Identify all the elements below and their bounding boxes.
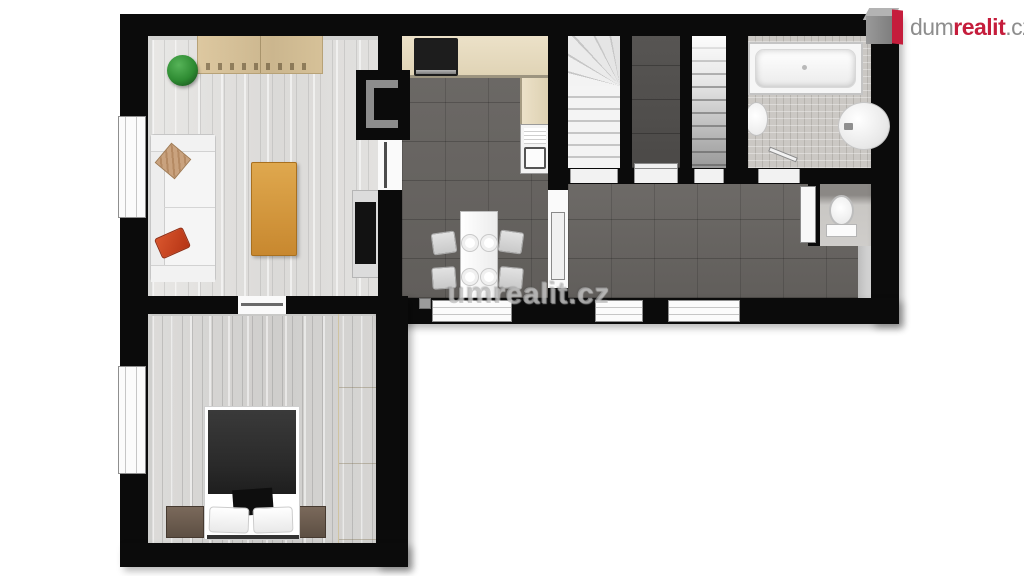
staircase-up-winders — [568, 36, 620, 86]
bathtub-drain — [802, 65, 807, 70]
dining-hall-door-leaf — [551, 212, 565, 280]
bedroom-right-wall — [376, 296, 408, 567]
logo-icon-red-slab — [892, 9, 903, 44]
plate — [480, 234, 498, 252]
bedroom-window — [118, 366, 146, 474]
watermark-text: umrealit.cz — [447, 277, 609, 311]
sideboard-vents — [206, 63, 314, 70]
tv — [355, 202, 376, 264]
bed-headboard — [207, 535, 299, 539]
water-heater — [838, 102, 890, 150]
wc-door-leaf — [800, 186, 816, 243]
sink-drainer — [524, 128, 546, 144]
pantry-doorway — [634, 169, 678, 183]
toilet — [829, 195, 854, 226]
logo-text-accent: realit — [953, 14, 1005, 40]
stairs-pantry-wall — [620, 36, 632, 182]
washbasin — [745, 102, 768, 136]
living-kitchen-door-leaf — [384, 142, 387, 188]
dumrealit-logo: dumrealit.cz — [862, 4, 1020, 48]
dining-window-crank — [419, 298, 431, 309]
floor-plan-canvas: umrealit.cz dumrealit.cz — [0, 0, 1024, 576]
living-kitchen-doorway — [378, 140, 402, 190]
logo-house-3d-icon — [862, 4, 908, 48]
pantry-floor — [632, 36, 680, 168]
coffee-table — [251, 162, 297, 256]
nightstand-left — [166, 506, 204, 538]
bed-pillow-right — [253, 506, 294, 533]
stairs2-bath-wall — [726, 36, 748, 182]
bed-duvet — [208, 410, 296, 494]
logo-text-suffix: .cz — [1005, 14, 1024, 40]
living-bedroom-door-leaf — [241, 303, 283, 306]
logo-text: dumrealit.cz — [910, 14, 1024, 41]
right-wall — [871, 14, 899, 324]
oven-handle — [416, 70, 456, 74]
plant — [167, 55, 198, 86]
left-wall — [120, 14, 148, 567]
pantry-stairs2-wall — [680, 36, 692, 182]
bathtub — [748, 42, 863, 95]
sofa-armrest-top — [151, 135, 215, 152]
sofa-armrest-bottom — [151, 265, 215, 282]
sofa-cushion-split — [164, 207, 215, 208]
staircase-down-doorway — [694, 169, 724, 183]
wardrobe — [338, 312, 378, 543]
pantry-door-leaf — [634, 163, 678, 169]
staircase-up-treads — [568, 86, 620, 168]
double-bed — [204, 406, 300, 540]
sink-basin — [524, 147, 546, 169]
staircase-up-doorway — [570, 169, 618, 183]
living-room-window — [118, 116, 146, 218]
kitchen-sink — [520, 124, 550, 174]
sideboard — [197, 34, 323, 74]
cooktop — [414, 38, 458, 76]
plate — [461, 234, 479, 252]
hallway-terrace-door — [668, 300, 740, 322]
bed-pillow-left — [209, 506, 250, 533]
bathroom-doorway — [758, 169, 800, 183]
toilet-tank — [826, 224, 857, 237]
dining-chair — [498, 229, 525, 254]
chimney-flue-inner — [374, 88, 398, 120]
hallway-right-wall-face — [858, 246, 871, 298]
chimney — [356, 70, 410, 140]
logo-icon-front-face — [866, 16, 892, 44]
dining-chair — [431, 230, 458, 255]
staircase-down-treads — [692, 36, 726, 168]
top-wall — [120, 14, 899, 36]
heater-label — [844, 123, 853, 130]
logo-text-prefix: dum — [910, 14, 953, 40]
bedroom-bottom-wall — [120, 543, 408, 567]
